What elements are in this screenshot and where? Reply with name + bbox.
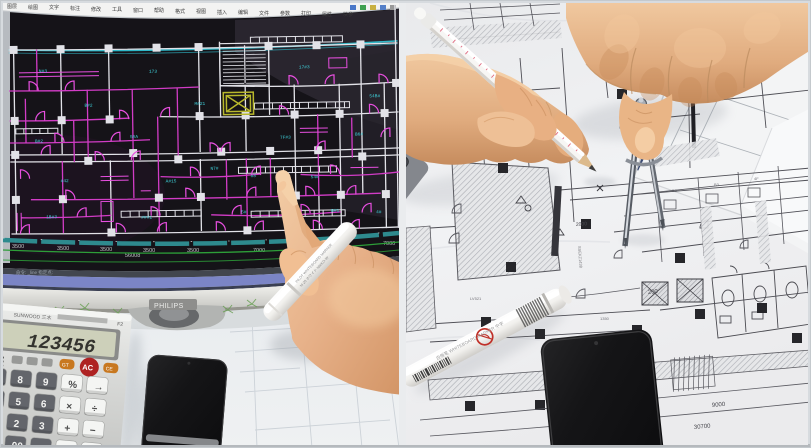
- svg-text:−: −: [89, 425, 96, 436]
- svg-text:1B#3: 1B#3: [46, 214, 57, 220]
- svg-text:M#21: M#21: [194, 101, 205, 107]
- svg-text:B6#: B6#: [355, 131, 363, 137]
- svg-text:N7#: N7#: [210, 166, 218, 172]
- svg-text:3500: 3500: [57, 246, 69, 252]
- svg-text:属性: 属性: [322, 11, 332, 18]
- svg-text:B2: B2: [672, 188, 678, 193]
- svg-text:B#2: B#2: [84, 103, 92, 109]
- svg-text:窗口: 窗口: [133, 7, 143, 14]
- svg-text:绘图: 绘图: [28, 4, 38, 11]
- svg-text:5#A: 5#A: [130, 134, 138, 140]
- svg-text:文字: 文字: [49, 4, 59, 11]
- svg-text:编辑: 编辑: [238, 9, 248, 16]
- svg-text:%: %: [68, 379, 78, 391]
- svg-text:200: 200: [648, 289, 659, 296]
- svg-text:54#: 54#: [311, 174, 319, 180]
- svg-text:文件: 文件: [259, 10, 269, 17]
- svg-text:AC: AC: [82, 363, 94, 373]
- svg-text:4#: 4#: [376, 209, 382, 215]
- svg-text:插入: 插入: [217, 9, 227, 16]
- svg-text:9000: 9000: [712, 402, 726, 409]
- svg-text:修改: 修改: [91, 6, 101, 13]
- svg-text:×: ×: [66, 401, 73, 412]
- svg-text:A#15: A#15: [166, 178, 177, 184]
- svg-text:CE: CE: [105, 366, 113, 373]
- svg-text:2000: 2000: [576, 221, 588, 228]
- svg-text:3500: 3500: [12, 244, 24, 250]
- svg-text:4F: 4F: [754, 176, 759, 181]
- svg-text:B#1: B#1: [331, 208, 339, 214]
- svg-text:打印: 打印: [301, 10, 311, 17]
- svg-text:LV521: LV521: [470, 296, 482, 301]
- svg-text:56008: 56008: [125, 253, 140, 259]
- svg-text:图层: 图层: [7, 4, 17, 10]
- svg-text:→: →: [93, 382, 104, 394]
- svg-text:1350: 1350: [600, 316, 610, 321]
- svg-text:参数: 参数: [280, 10, 290, 17]
- svg-text:54B#: 54B#: [369, 93, 380, 99]
- svg-text:17#3: 17#3: [299, 64, 310, 70]
- svg-text:标注: 标注: [70, 5, 80, 12]
- svg-text:B3: B3: [714, 182, 720, 187]
- svg-text:7F#3: 7F#3: [280, 135, 291, 141]
- svg-text:帮助: 帮助: [154, 7, 164, 14]
- svg-text:N#3: N#3: [39, 68, 47, 74]
- svg-text:173: 173: [149, 69, 157, 75]
- svg-text:B#2: B#2: [35, 138, 43, 144]
- svg-text:视图: 视图: [196, 8, 206, 15]
- svg-text:###1: ###1: [141, 215, 152, 221]
- svg-text:格式: 格式: [175, 8, 185, 15]
- svg-text:GT: GT: [62, 362, 69, 369]
- svg-text:F2: F2: [117, 321, 124, 328]
- svg-text:#42: #42: [61, 178, 69, 184]
- svg-text:+: +: [64, 423, 71, 434]
- svg-text:#3: #3: [251, 173, 257, 179]
- svg-text:工具: 工具: [112, 7, 122, 13]
- svg-text:5#: 5#: [241, 209, 247, 215]
- svg-text:块参: 块参: [343, 11, 353, 18]
- svg-text:PHILIPS: PHILIPS: [154, 303, 184, 310]
